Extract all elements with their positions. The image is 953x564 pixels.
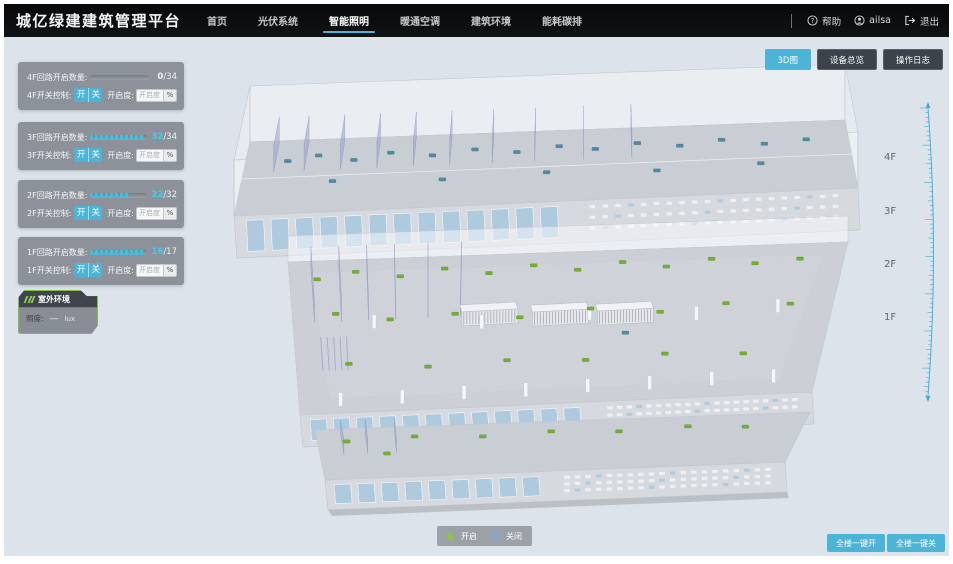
count-label: 1F回路开启数量: [27, 247, 87, 258]
switch-group: 开关 [74, 206, 102, 220]
openness-input-2F[interactable] [136, 207, 163, 220]
legend: 开启 关闭 [437, 526, 532, 546]
floor-panel-2F: 2F回路开启数量:22/322F开关控制:开关开启度:% [18, 180, 184, 228]
switch-row-2F: 2F开关控制:开关开启度:% [27, 204, 177, 222]
off-button-1F[interactable]: 关 [88, 263, 102, 277]
user-area: ? 帮助 ailsa 退出 [791, 14, 949, 28]
openness-label: 开启度: [107, 90, 134, 101]
off-button-3F[interactable]: 关 [88, 148, 102, 162]
openness-label: 开启度: [107, 208, 134, 219]
nav-item-0[interactable]: 首页 [205, 4, 229, 37]
building-3d-view[interactable]: 4F3F2F1F [4, 37, 949, 556]
switch-row-1F: 1F开关控制:开关开启度:% [27, 261, 177, 279]
logout-button[interactable]: 退出 [904, 14, 939, 28]
user-button[interactable]: ailsa [854, 15, 891, 26]
count-label: 4F回路开启数量: [27, 72, 87, 83]
svg-text:?: ? [811, 17, 815, 25]
count-row-2F: 2F回路开启数量:22/32 [27, 186, 177, 204]
count-value: 22/32 [151, 190, 177, 200]
openness-input-wrap: % [136, 149, 177, 162]
scene: 4F3F2F1F 4F回路开启数量:0/344F开关控制:开关开启度:%3F回路… [4, 37, 949, 556]
count-value: 32/34 [151, 132, 177, 142]
switch-group: 开关 [74, 263, 102, 277]
openness-label: 开启度: [107, 265, 134, 276]
illuminance-value: — [50, 314, 59, 324]
on-button-3F[interactable]: 开 [74, 148, 88, 162]
nav-item-2[interactable]: 智能照明 [327, 4, 371, 37]
switch-group: 开关 [74, 88, 102, 102]
progress-bar [90, 193, 147, 198]
off-button-2F[interactable]: 关 [88, 206, 102, 220]
nav-item-5[interactable]: 能耗碳排 [540, 4, 584, 37]
outdoor-panel: 室外环境 照度: — lux [18, 290, 98, 334]
nav-item-4[interactable]: 建筑环境 [469, 4, 513, 37]
switch-label: 3F开关控制: [27, 150, 71, 161]
progress-fill [90, 193, 129, 198]
on-button-4F[interactable]: 开 [74, 88, 88, 102]
bulk-button-1[interactable]: 全楼一键关 [887, 534, 945, 552]
count-value: 0/34 [153, 72, 177, 82]
slashes-icon [25, 296, 34, 303]
logout-label: 退出 [920, 14, 939, 28]
progress-bar [90, 250, 147, 255]
on-button-1F[interactable]: 开 [74, 263, 88, 277]
app-root: 城亿绿建建筑管理平台 首页光伏系统智能照明暖通空调建筑环境能耗碳排 ? 帮助 a… [0, 0, 953, 564]
top-bar: 城亿绿建建筑管理平台 首页光伏系统智能照明暖通空调建筑环境能耗碳排 ? 帮助 a… [4, 4, 949, 37]
floor-panel-1F: 1F回路开启数量:16/171F开关控制:开关开启度:% [18, 237, 184, 285]
openness-input-wrap: % [136, 89, 177, 102]
switch-row-3F: 3F开关控制:开关开启度:% [27, 146, 177, 164]
switch-row-4F: 4F开关控制:开关开启度:% [27, 86, 177, 104]
count-label: 2F回路开启数量: [27, 190, 87, 201]
view-button-1[interactable]: 设备总览 [817, 49, 877, 70]
count-row-3F: 3F回路开启数量:32/34 [27, 128, 177, 146]
help-button[interactable]: ? 帮助 [807, 14, 841, 28]
floor-label-4F: 4F [884, 152, 896, 163]
user-icon [854, 15, 865, 26]
illuminance-unit: lux [65, 315, 76, 323]
legend-off-label: 关闭 [506, 531, 522, 542]
openness-input-wrap: % [136, 264, 177, 277]
floor-label-2F: 2F [884, 259, 896, 270]
openness-input-1F[interactable] [136, 264, 163, 277]
divider [791, 14, 792, 28]
count-label: 3F回路开启数量: [27, 132, 87, 143]
username-label: ailsa [869, 15, 891, 26]
switch-group: 开关 [74, 148, 102, 162]
bulk-action-buttons: 全楼一键开全楼一键关 [827, 534, 945, 552]
openness-label: 开启度: [107, 150, 134, 161]
progress-bar [90, 135, 147, 140]
app-title: 城亿绿建建筑管理平台 [16, 10, 181, 31]
openness-input-3F[interactable] [136, 149, 163, 162]
count-row-4F: 4F回路开启数量:0/34 [27, 68, 177, 86]
bulk-button-0[interactable]: 全楼一键开 [827, 534, 885, 552]
progress-bar [90, 75, 149, 80]
openness-input-4F[interactable] [136, 89, 163, 102]
on-button-2F[interactable]: 开 [74, 206, 88, 220]
view-button-0[interactable]: 3D图 [765, 49, 811, 70]
floor-label-3F: 3F [884, 206, 896, 217]
outdoor-panel-body: 照度: — lux [19, 308, 97, 329]
legend-on-swatch [447, 533, 454, 540]
floor-panel-3F: 3F回路开启数量:32/343F开关控制:开关开启度:% [18, 122, 184, 170]
switch-label: 2F开关控制: [27, 208, 71, 219]
logout-icon [904, 15, 916, 26]
view-switch-buttons: 3D图设备总览操作日志 [765, 49, 944, 70]
percent-button-4F[interactable]: % [163, 89, 177, 102]
count-row-1F: 1F回路开启数量:16/17 [27, 243, 177, 261]
help-icon: ? [807, 15, 818, 26]
main-nav: 首页光伏系统智能照明暖通空调建筑环境能耗碳排 [205, 4, 584, 37]
percent-button-1F[interactable]: % [163, 264, 177, 277]
percent-button-3F[interactable]: % [163, 149, 177, 162]
legend-off-swatch [492, 533, 499, 540]
progress-fill [90, 250, 144, 255]
floor-label-1F: 1F [884, 312, 896, 323]
switch-label: 4F开关控制: [27, 90, 71, 101]
legend-on-label: 开启 [461, 531, 477, 542]
view-button-2[interactable]: 操作日志 [883, 49, 943, 70]
switch-label: 1F开关控制: [27, 265, 71, 276]
nav-item-1[interactable]: 光伏系统 [256, 4, 300, 37]
progress-fill [90, 135, 144, 140]
illuminance-label: 照度: [26, 313, 44, 324]
off-button-4F[interactable]: 关 [88, 88, 102, 102]
floor-panel-4F: 4F回路开启数量:0/344F开关控制:开关开启度:% [18, 62, 184, 110]
help-label: 帮助 [822, 14, 841, 28]
outdoor-panel-title: 室外环境 [38, 294, 70, 305]
nav-item-3[interactable]: 暖通空调 [398, 4, 442, 37]
count-value: 16/17 [151, 247, 177, 257]
percent-button-2F[interactable]: % [163, 207, 177, 220]
openness-input-wrap: % [136, 207, 177, 220]
